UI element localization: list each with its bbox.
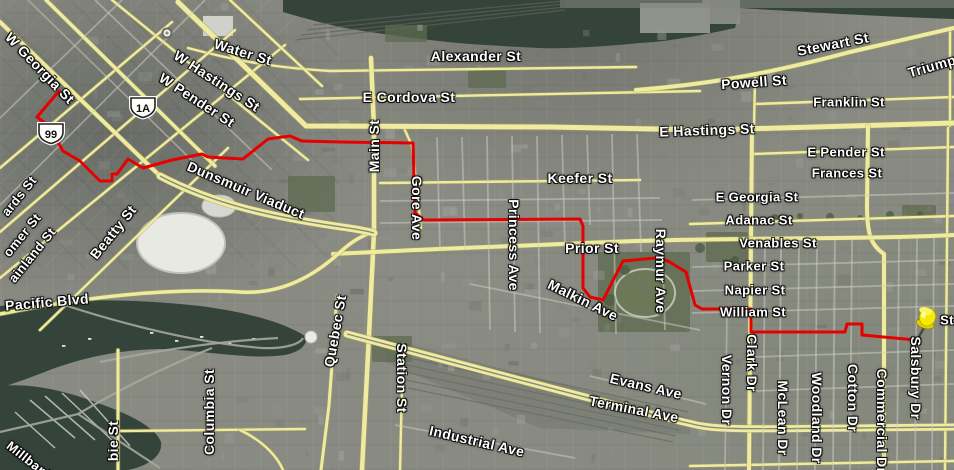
map-viewport[interactable]: 991A W Georgia StWater StW Hastings StW …	[0, 0, 954, 470]
svg-text:99: 99	[45, 129, 57, 141]
parks-layer	[288, 25, 936, 362]
highway-shield-99: 99	[39, 124, 63, 144]
destination-pushpin-icon[interactable]	[915, 306, 938, 340]
map-canvas: 991A	[0, 0, 954, 470]
svg-text:1A: 1A	[136, 103, 150, 115]
highway-shield-1A: 1A	[131, 98, 155, 118]
station-icon	[163, 29, 172, 38]
